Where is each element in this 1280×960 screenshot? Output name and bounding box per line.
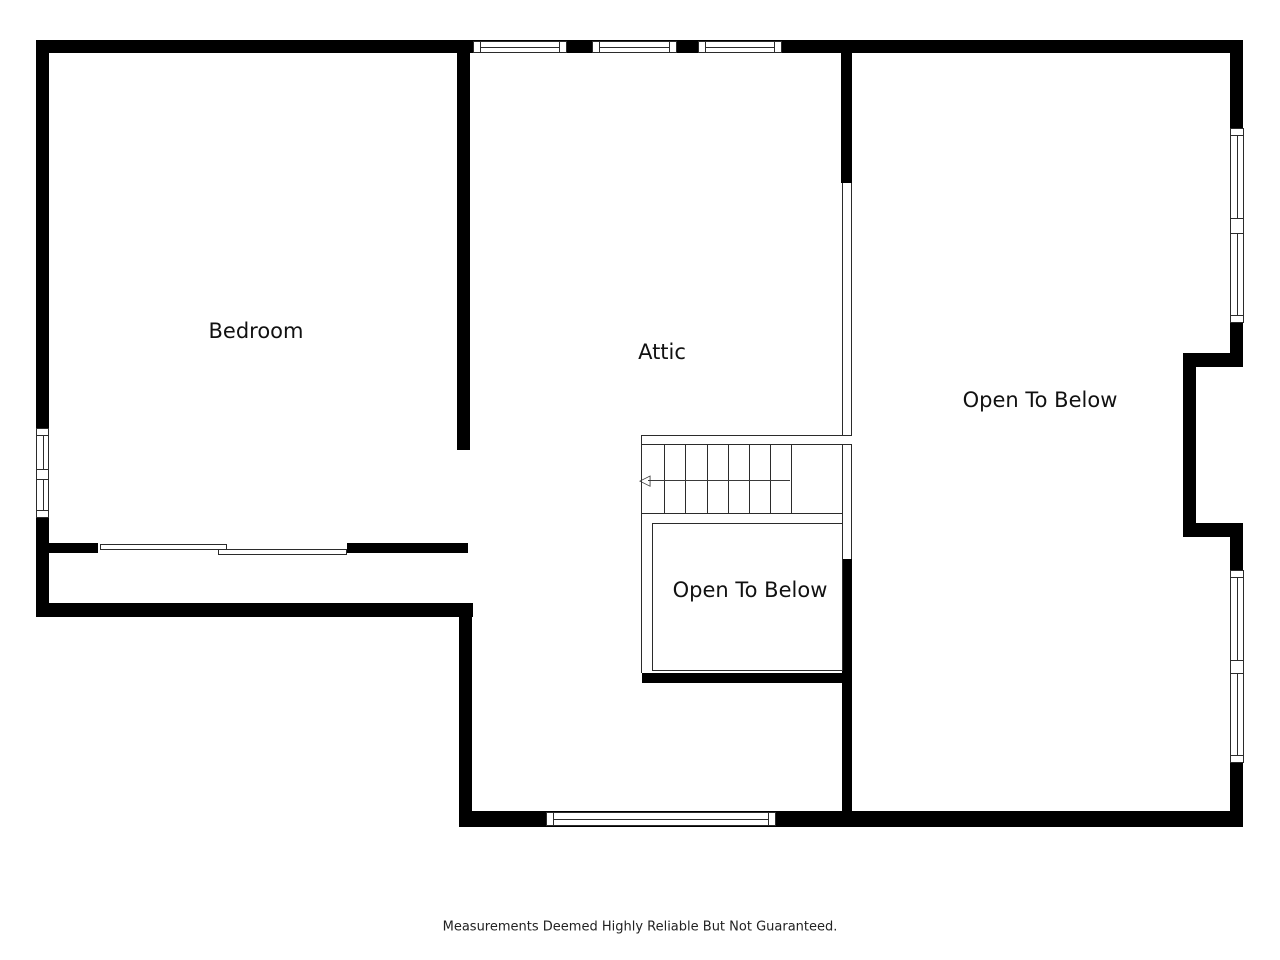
window-top-1 [473, 41, 567, 53]
wall-left-upper [36, 40, 49, 428]
window-sash-divider [1231, 660, 1243, 674]
stairs-direction-arrow-icon: ◁ [639, 473, 651, 488]
room-label-bedroom: Bedroom [209, 319, 304, 343]
wall-right-segment-3 [1230, 537, 1243, 570]
room-label-attic: Attic [638, 340, 686, 364]
window-right-lower [1230, 570, 1244, 763]
window-frame-line [37, 510, 48, 511]
stair-tread [685, 445, 686, 513]
window-top-3 [698, 41, 782, 53]
window-top-2 [592, 41, 677, 53]
stair-tread [791, 445, 792, 513]
wall-lower-left-vertical [459, 603, 472, 827]
stair-tread [664, 445, 665, 513]
stair-tread [770, 445, 771, 513]
window-sash-divider [37, 469, 48, 480]
window-glass-line [481, 47, 559, 48]
window-frame-line [669, 42, 670, 52]
floor-plan: ◁ Bedroom Attic Open To Below Open To Be… [0, 0, 1280, 960]
stair-tread [749, 445, 750, 513]
wall-right-segment-1 [1230, 40, 1243, 128]
window-frame-line [1231, 315, 1243, 316]
wall-divider-lower [842, 559, 852, 811]
wall-bedroom-right [457, 40, 470, 450]
wall-bedroom-bottom-left [36, 543, 98, 553]
wall-right-segment-4 [1230, 763, 1243, 827]
window-frame-line [768, 813, 769, 825]
window-glass-line [600, 47, 669, 48]
window-frame-line [1231, 755, 1243, 756]
sliding-door-panel-1 [100, 544, 227, 550]
stair-tread [707, 445, 708, 513]
wall-divider-upper [841, 53, 852, 183]
window-glass-line [706, 47, 774, 48]
stairs-direction-line [648, 480, 790, 481]
wall-notch-vertical [1183, 353, 1196, 537]
wall-small-room-bottom [642, 673, 852, 683]
room-label-open-to-below-right: Open To Below [963, 388, 1118, 412]
sliding-door-panel-2 [218, 549, 347, 555]
wall-bedroom-bottom-right [347, 543, 468, 553]
room-label-open-to-below-center: Open To Below [673, 578, 828, 602]
window-left [36, 428, 49, 518]
disclaimer-text: Measurements Deemed Highly Reliable But … [443, 920, 838, 935]
wall-strip-bottom [36, 603, 473, 617]
window-frame-line [559, 42, 560, 52]
stair-tread [728, 445, 729, 513]
stair-railing [842, 183, 852, 559]
window-frame-line [774, 42, 775, 52]
wall-right-segment-2 [1230, 323, 1243, 353]
window-glass-line [554, 819, 768, 820]
wall-notch-bottom [1183, 523, 1243, 537]
window-right-upper [1230, 128, 1244, 323]
window-bottom [546, 812, 776, 826]
stairs [641, 444, 843, 514]
window-sash-divider [1231, 218, 1243, 234]
